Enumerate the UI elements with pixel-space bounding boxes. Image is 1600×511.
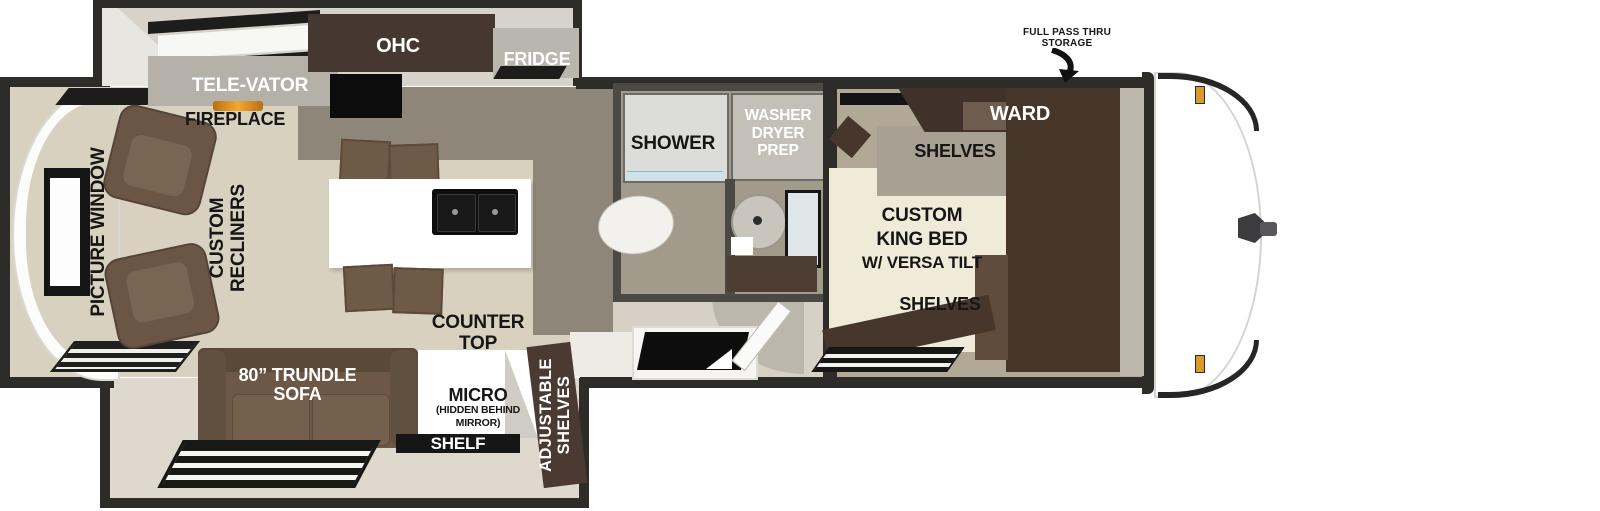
counter-top-label: COUNTER TOP xyxy=(408,313,548,354)
micro-label: MICRO xyxy=(428,386,528,405)
ward-label: WARD xyxy=(975,104,1065,126)
dinette-chair-4 xyxy=(392,267,444,315)
adjustable-shelves-label: ADJUSTABLE SHELVES xyxy=(538,340,576,490)
sink-faucet-left xyxy=(452,209,458,215)
televator-label: TELE-VATOR xyxy=(185,76,315,97)
sofa-window xyxy=(157,440,381,488)
hitch-tip xyxy=(1260,222,1277,236)
wall-rear-left xyxy=(0,77,10,388)
front-cap-trim-bottom xyxy=(1158,340,1259,398)
washer-dryer-label: WASHER DRYER PREP xyxy=(733,107,823,160)
front-cap-trim-top xyxy=(1158,73,1259,131)
picture-window-glass xyxy=(50,178,80,286)
bedroom-window-bottom xyxy=(811,347,965,372)
micro-sub-label-1: (HIDDEN BEHIND xyxy=(408,405,548,416)
sink-faucet-right xyxy=(492,209,498,215)
recliners-label: CUSTOM RECLINERS xyxy=(208,173,252,303)
rear-window-top xyxy=(55,88,160,105)
shelf-label: SHELF xyxy=(396,435,520,453)
floorplan-canvas: TELE-VATOR OHC FRIDGE FIREPLACE PICTURE … xyxy=(0,0,1600,511)
marker-light-top xyxy=(1195,86,1205,104)
king-bed-label: CUSTOM KING BED W/ VERSA TILT xyxy=(832,204,1012,273)
tv-unit xyxy=(330,74,402,118)
fridge-label: FRIDGE xyxy=(495,50,579,69)
toilet-drain xyxy=(753,216,762,225)
shelves-foot-label: SHELVES xyxy=(880,295,1000,314)
picture-window-label: PICTURE WINDOW xyxy=(89,135,109,329)
entry-step-well xyxy=(637,332,749,370)
storage-note: FULL PASS THRU STORAGE xyxy=(1017,28,1117,50)
toilet-tank xyxy=(731,237,753,255)
storage-arrow-icon xyxy=(1046,48,1080,84)
marker-light-bottom xyxy=(1195,355,1205,373)
kitchen-floor-side xyxy=(533,87,613,335)
dinette-chair-3 xyxy=(343,264,395,313)
micro-sub-label-2: MIRROR) xyxy=(428,418,528,429)
trundle-sofa-label: 80” TRUNDLE SOFA xyxy=(215,366,380,405)
recliner-top-cushion xyxy=(121,133,194,198)
recliner-bottom-cushion xyxy=(124,260,195,324)
counter-strip-entry xyxy=(570,332,636,377)
wall-rear-top xyxy=(0,77,110,87)
shower-label: SHOWER xyxy=(625,134,721,155)
ohc-label: OHC xyxy=(363,36,433,58)
shelves-head-label: SHELVES xyxy=(895,142,1015,161)
fireplace-label: FIREPLACE xyxy=(185,110,285,129)
wardrobe-column xyxy=(1006,88,1120,372)
bath-bench xyxy=(727,256,817,292)
wardrobe-side-face xyxy=(1120,88,1144,376)
shower-glass xyxy=(627,171,723,179)
sofa-arm-right xyxy=(390,350,418,446)
